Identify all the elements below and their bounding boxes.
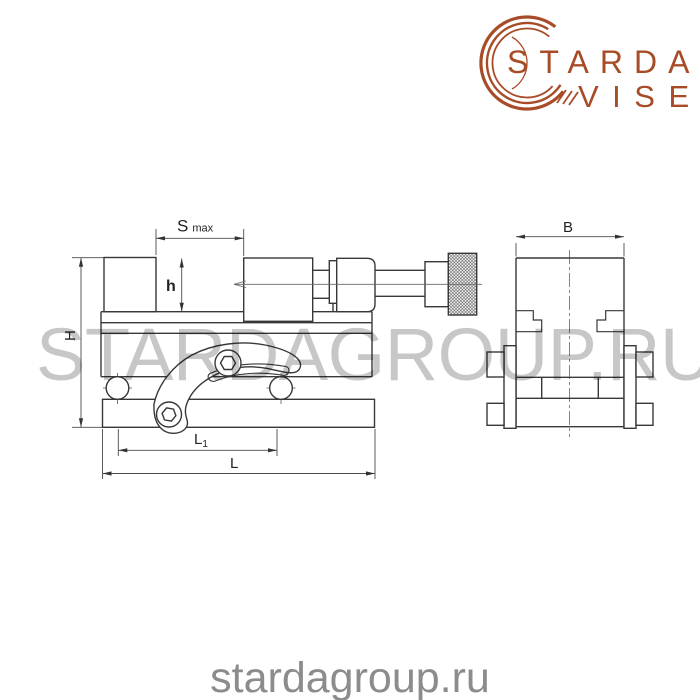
dim-l xyxy=(103,429,376,479)
dim-label-l: L xyxy=(230,455,238,472)
lead-screw xyxy=(375,270,425,296)
watermark-text: STARDAGROUP.RU xyxy=(36,318,700,392)
movable-jaw xyxy=(244,258,313,321)
dim-label-b: B xyxy=(563,219,573,236)
dim-label-h: h xyxy=(166,278,176,295)
screw-flange xyxy=(329,261,336,304)
logo-line2: VISE xyxy=(578,79,700,114)
dim-label-smax: Smax xyxy=(177,217,214,236)
dim-label-l1: L1 xyxy=(194,431,208,450)
screw-bracket xyxy=(337,258,375,311)
logo-slash-marks-icon xyxy=(557,90,578,105)
product-drawing-page: Smax h H L1 L B STARDAGROUP.RU STARDA VI… xyxy=(0,0,700,700)
logo-line1: STARDA xyxy=(507,44,700,80)
hex-socket-screw-lower xyxy=(157,402,182,427)
starda-vise-logo: STARDA VISE xyxy=(470,8,700,125)
footer-site-text: stardagroup.ru xyxy=(0,657,700,700)
dim-h xyxy=(180,259,184,312)
base-plate xyxy=(103,399,375,427)
dim-b xyxy=(516,235,624,257)
fixed-jaw xyxy=(104,258,156,312)
